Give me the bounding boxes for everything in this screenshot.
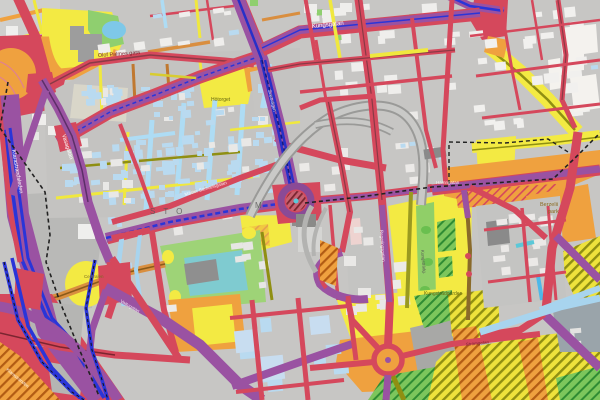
svg-text:Berzelii: Berzelii: [540, 202, 558, 208]
svg-text:STO: STO: [150, 207, 190, 216]
svg-text:Kungsträdgården: Kungsträdgården: [424, 290, 463, 297]
svg-text:Hamngatan: Hamngatan: [436, 180, 460, 185]
svg-text:M: M: [255, 201, 262, 210]
svg-text:park: park: [548, 209, 559, 215]
svg-text:Centralen: Centralen: [84, 274, 104, 279]
svg-text:Hötorget: Hötorget: [211, 97, 231, 103]
